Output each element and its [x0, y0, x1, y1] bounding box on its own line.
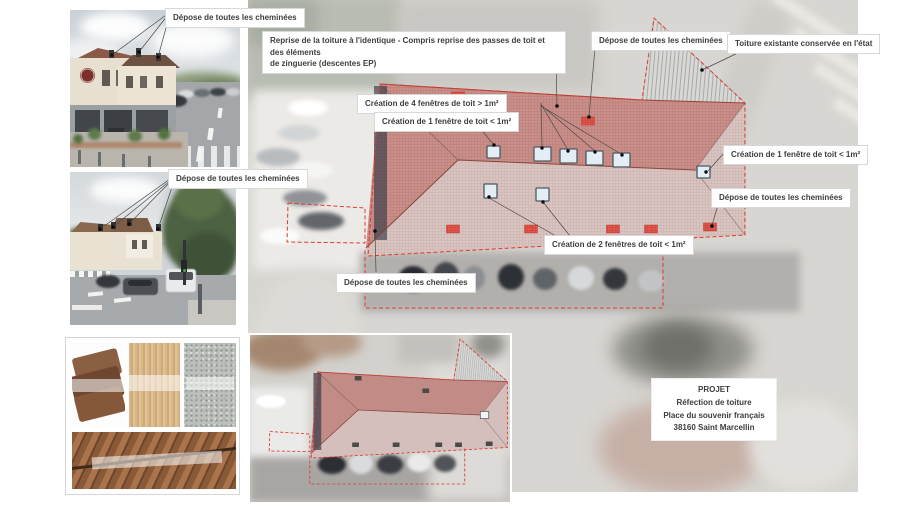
- callout-depose-bottom: Dépose de toutes les cheminées: [336, 273, 476, 293]
- callout-reprise-line2: de zinguerie (descentes EP): [270, 58, 558, 70]
- callout-depose-photo1: Dépose de toutes les cheminées: [165, 8, 305, 28]
- project-title: PROJET: [660, 384, 768, 397]
- small-roof-plan: [269, 339, 507, 484]
- callout-depose-photo2: Dépose de toutes les cheminées: [168, 169, 308, 189]
- callout-toiture-existante: Toiture existante conservée en l'état: [727, 34, 880, 54]
- callout-creation-4-fenetres: Création de 4 fenêtres de toit > 1m²: [357, 94, 507, 114]
- callout-reprise-toiture: Reprise de la toiture à l'identique - Co…: [262, 31, 566, 74]
- callout-depose-right: Dépose de toutes les cheminées: [711, 188, 851, 208]
- project-line2: Réfection de toiture: [660, 397, 768, 410]
- callout-creation-2-fenetres: Création de 2 fenêtres de toit < 1m²: [544, 235, 694, 255]
- callout-depose-top: Dépose de toutes les cheminées: [591, 31, 731, 51]
- callout-creation-1-fenetre-right: Création de 1 fenêtre de toit < 1m²: [723, 145, 868, 165]
- callout-creation-1-fenetre-left: Création de 1 fenêtre de toit < 1m²: [374, 112, 519, 132]
- project-info-box: PROJET Réfection de toiture Place du sou…: [651, 378, 777, 441]
- plan-page: Dépose de toutes les cheminées Dépose de…: [0, 0, 900, 506]
- project-line4: 38160 Saint Marcellin: [660, 422, 768, 435]
- project-line3: Place du souvenir français: [660, 410, 768, 423]
- callout-reprise-line1: Reprise de la toiture à l'identique - Co…: [270, 35, 558, 58]
